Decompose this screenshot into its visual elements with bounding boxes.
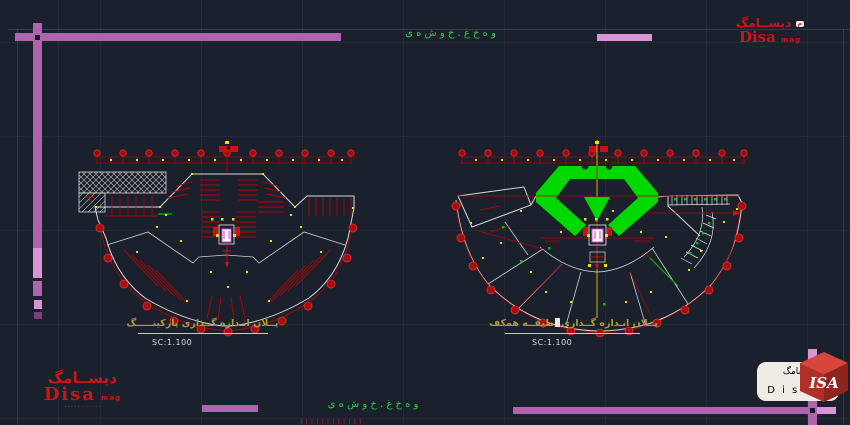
border-line-top-segment [597, 34, 652, 41]
ground-stair-top-treads [674, 198, 726, 200]
green-notch-right [606, 163, 613, 170]
ground-caption-underline [505, 333, 640, 334]
ground-stair-curved-treads [689, 222, 710, 254]
border-line-left-end [34, 312, 42, 319]
parking-scale: SC:1.100 [152, 338, 192, 347]
logo-suffix: mag [101, 394, 121, 402]
watermark-text-top: و ه خ غ . خ و ش ه ی [358, 28, 543, 39]
parking-dimension-row [95, 153, 357, 164]
ground-room-lines [488, 222, 688, 325]
ground-grid-bubbles-arc [452, 202, 746, 337]
sheet-frame-left [17, 29, 18, 425]
ground-grid-bubbles-top [459, 150, 747, 156]
parking-grid-bubbles-top [94, 150, 354, 156]
logo-tagline: ٠٠ ٠٠٠ ٠ [769, 44, 788, 50]
border-line-top [15, 33, 341, 41]
border-corner-dot-tl [35, 35, 40, 40]
border-line-left-low [34, 300, 42, 309]
logo-suffix: mag [818, 389, 829, 395]
ground-caption-end: طبقــه همکف [489, 318, 554, 329]
logo-chip: م [796, 21, 804, 27]
parking-caption: پــلان انـدازه گــذاری پارکینـــــگ [120, 318, 285, 329]
logo-name: D i s a [767, 385, 812, 396]
ground-dimension-ticks [475, 141, 735, 161]
logo-calligraphy: ديسامگ [783, 367, 813, 377]
ground-red-lines [456, 196, 740, 318]
border-line-bottom-left [202, 405, 258, 412]
parking-stall-hatches [105, 180, 351, 320]
ground-title-marks [589, 146, 608, 152]
text-cursor-block [555, 318, 560, 327]
parking-inner-aisle [107, 232, 345, 263]
green-notch-left [582, 163, 589, 170]
ground-scale: SC:1.100 [532, 338, 572, 347]
logo-bottom-right-badge: ديسامگ D i s a mag [757, 362, 839, 401]
ground-green-zones [536, 166, 658, 236]
parking-outline [95, 174, 354, 326]
background-grid [0, 0, 850, 425]
ground-stair-top [668, 195, 730, 205]
logo-bottom-left: ديســامگ Disa mag ٠٠٠٠٠٠ ٠٠٠٠٠ [25, 371, 140, 410]
ground-green-markers [502, 226, 605, 305]
ground-caption: پــلان انـدازه گــذاریطبقــه همکف [498, 318, 658, 329]
ground-outline [456, 187, 742, 331]
plan-ground-floor [452, 140, 748, 337]
ground-dimension-row [460, 153, 748, 164]
cad-canvas: { "colors": { "bg": "#1a212c", "grid": "… [0, 0, 850, 425]
parking-dim-arc [100, 226, 352, 331]
sheet-frame-right [843, 29, 844, 425]
drawing-layer [0, 0, 850, 425]
logo-top-right: م ديســامگ Disa mag ٠٠ ٠٠٠ ٠ ٠٠٠ ٠٠ [732, 17, 808, 50]
ground-ramp-hatch [646, 254, 678, 286]
parking-dimension-ticks [110, 141, 343, 161]
ground-red-arrow [733, 210, 741, 216]
ground-dim-arc [456, 205, 740, 333]
parking-core [211, 218, 240, 268]
border-corner-dot-br [810, 408, 815, 413]
ground-stair-curved [681, 207, 716, 268]
border-line-left-light [33, 248, 42, 278]
parking-title-marks [219, 146, 238, 174]
border-line-bottom [513, 407, 816, 414]
parking-caption-underline [138, 333, 268, 334]
ground-core [583, 218, 612, 270]
parking-point-markers [95, 173, 354, 302]
border-line-left [33, 23, 42, 248]
watermark-text-bottom: و ه خ غ . خ و ش ه ی [283, 399, 463, 410]
logo-name: Disa [44, 384, 96, 405]
ground-point-markers [470, 208, 738, 303]
logo-tagline: ٠٠٠٠٠٠ [82, 403, 101, 410]
border-line-bottom-tip [816, 407, 836, 414]
plan-parking [79, 141, 357, 336]
parking-hatched-walls [79, 172, 166, 212]
logo-suffix: mag [781, 36, 801, 44]
border-line-left-mid [33, 281, 42, 296]
watermark-red-marks: ا ا ا ا ا ا ا ا ا ا ا ا [300, 419, 460, 424]
ground-caption-start: پــلان انـدازه گــذاری [561, 318, 658, 329]
